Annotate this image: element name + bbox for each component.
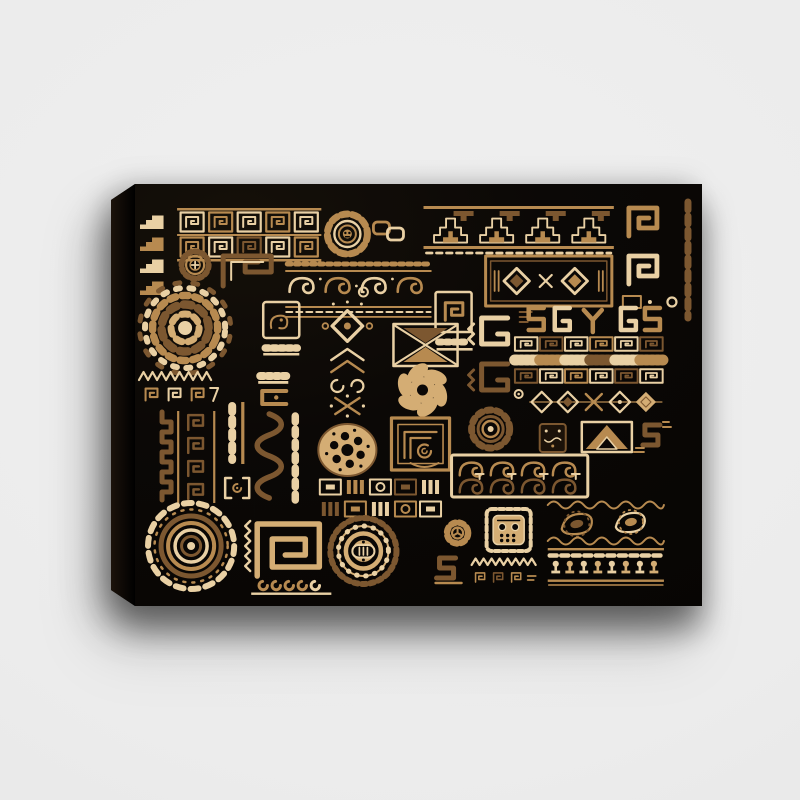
canvas-side-edge [111, 184, 135, 606]
s-glyph [436, 558, 462, 583]
pinwheel-flower [396, 360, 449, 421]
tile-panel [320, 480, 441, 517]
spiral-stamp [436, 292, 473, 351]
maze-square [391, 418, 449, 470]
ray-sun [472, 410, 510, 448]
g-spiral-glyphs [469, 318, 508, 390]
ornate-column [323, 301, 373, 418]
tribal-mask [487, 509, 531, 551]
labyrinth-stamp [245, 521, 331, 595]
dotted-wheel [318, 424, 376, 476]
gear-medallion [330, 518, 396, 584]
loop-strip [232, 402, 244, 464]
dark-stamp [540, 424, 566, 452]
right-meander-strip [623, 202, 688, 318]
meander-panel [162, 411, 215, 503]
snake-squiggle-band [257, 414, 295, 500]
ornate-frame-panel [486, 256, 612, 306]
goblet-frieze [548, 548, 664, 585]
tile-band [515, 337, 663, 383]
petal-wheel [447, 523, 468, 544]
triangle-frame [582, 422, 632, 452]
paisley-band [548, 502, 664, 545]
glyph-letter-row [520, 308, 660, 332]
zigzag-pyramid-banner [424, 206, 614, 253]
stamp-and-comb [263, 302, 299, 356]
canvas-front [135, 184, 702, 606]
diamond-chain [530, 392, 662, 412]
scallop-sun [148, 503, 234, 589]
sun-flower [327, 214, 367, 254]
mini-zigzag-band [472, 559, 536, 583]
scroll-banner [452, 455, 588, 497]
canvas-body [111, 184, 702, 606]
chain-links [373, 222, 403, 240]
bracket-stamp [225, 478, 249, 498]
s-bird-glyph [634, 422, 671, 452]
sawtooth-meander-band [139, 372, 218, 401]
artwork-svg [135, 184, 702, 606]
cross-sun [182, 252, 209, 279]
stair-glyphs [140, 216, 164, 296]
canvas-print [111, 184, 702, 606]
comb-yoke [258, 376, 288, 404]
photo-backdrop [0, 0, 800, 800]
